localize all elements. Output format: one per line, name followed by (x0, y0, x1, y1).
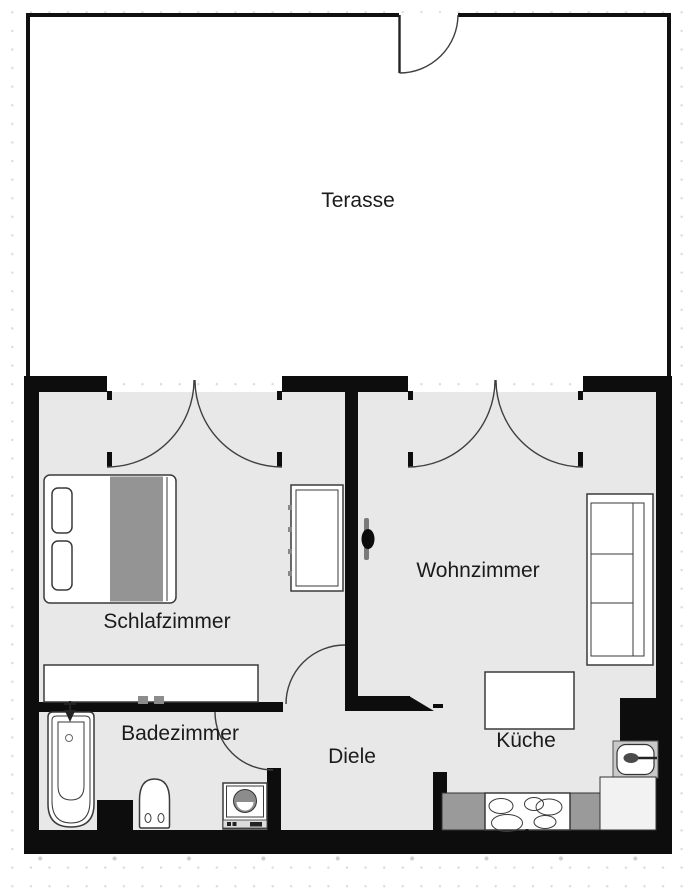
kitchen-sink-icon (613, 741, 658, 778)
sofa-icon (587, 494, 653, 665)
washing-machine-icon (223, 783, 267, 829)
room-label-badezimmer: Badezimmer (121, 722, 239, 746)
dining-table-icon (485, 672, 574, 729)
room-label-diele: Diele (328, 745, 376, 769)
bed-icon (44, 475, 176, 603)
room-label-terasse: Terasse (321, 189, 395, 213)
room-label-wohnzimmer: Wohnzimmer (416, 559, 539, 583)
sideboard-icon (44, 665, 258, 702)
toilet-icon (140, 779, 170, 828)
bathtub-icon (48, 701, 94, 827)
room-label-kueche: Küche (496, 729, 556, 753)
room-label-schlafzimmer: Schlafzimmer (103, 610, 230, 634)
wardrobe-icon (288, 485, 343, 591)
tv-icon (362, 518, 375, 560)
stove-icon (485, 793, 570, 833)
wohnzimmer-double-door-icon (408, 380, 583, 467)
wall-taper-end (409, 696, 443, 711)
schlafzimmer-double-door-icon (107, 380, 282, 467)
terrace-door-icon (400, 15, 459, 73)
floor-plan: Terasse Schlafzimmer Wohnzimmer Badezimm… (0, 0, 688, 893)
schlafzimmer-hall-door-icon (286, 645, 345, 704)
